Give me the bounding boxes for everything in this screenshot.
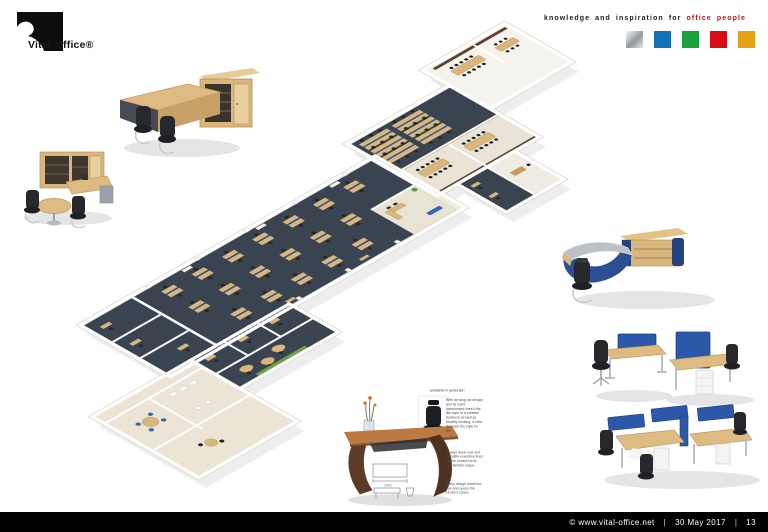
footer-separator: | (735, 518, 737, 527)
render-executive-desk-cabinet (112, 56, 264, 162)
fine-print-paragraph: Every design leads the eye and opens the… (446, 482, 483, 495)
footer-bar: © www.vital-office.net | 30 May 2017 | 1… (0, 512, 768, 532)
footer-url[interactable]: © www.vital-office.net (569, 518, 654, 527)
vital-office-logo: Vital-Office® (17, 12, 137, 56)
tagline: knowledge and inspiration for office peo… (544, 15, 746, 22)
palette-square-amber (738, 31, 755, 48)
flower-vase (363, 396, 376, 433)
tagline-prefix: knowledge and inspiration for (544, 15, 687, 22)
fine-print-paragraph: With its wing cut design and its hand ha… (446, 399, 483, 434)
fine-print-paragraph: Always desk, real and versatile executiv… (446, 451, 483, 469)
fine-print: ambiente in perfection With its wing cut… (428, 389, 513, 496)
footer-separator: | (664, 518, 666, 527)
dimension-sketches (373, 464, 414, 498)
chair-glyph (592, 340, 610, 386)
logo-text: Vital-Office® (28, 39, 94, 51)
fine-print-caption: ambiente in perfection (430, 389, 513, 393)
brochure-page: Vital-Office® knowledge and inspiration … (0, 0, 768, 532)
palette-square-silver (626, 31, 643, 48)
palette-square-blue (654, 31, 671, 48)
footer-page-number: 13 (746, 518, 756, 527)
palette-squares (626, 31, 755, 48)
tagline-highlight: office people (687, 15, 746, 22)
palette-square-green (682, 31, 699, 48)
palette-square-red (710, 31, 727, 48)
footer-date: 30 May 2017 (675, 518, 726, 527)
render-workstation-cluster (596, 396, 768, 492)
sketch-dimension-label: 2000 (384, 484, 392, 488)
render-executive-desk-blue (550, 208, 735, 316)
render-office-combination (10, 136, 128, 228)
